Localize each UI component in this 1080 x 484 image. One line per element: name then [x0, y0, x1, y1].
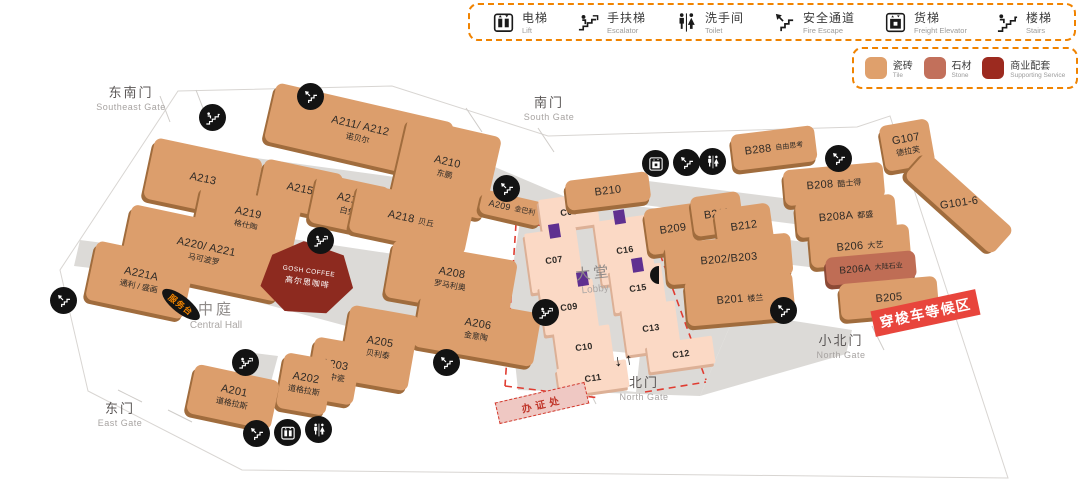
legend-item-fire-escape: 安全通道 Fire Escape [773, 9, 855, 35]
fire-escape-icon [297, 83, 324, 110]
booth-a202: A202 道格拉斯 [276, 352, 335, 416]
toilet-icon [305, 416, 332, 443]
toilet-icon [699, 148, 726, 175]
material-supporting-service: 商业配套 Supporting Service [982, 57, 1065, 79]
material-label-zh: 石材 [952, 57, 972, 72]
stairs-icon [199, 104, 226, 131]
gate-southeast: 东南门 Southeast Gate [72, 82, 190, 112]
freight-elevator-icon [642, 150, 669, 177]
stone-color-chip [924, 57, 946, 79]
material-stone: 石材 Stone [924, 57, 972, 79]
legend-label-zh: 洗手间 [705, 9, 744, 26]
fire-escape-icon [50, 287, 77, 314]
legend-item-lift: 电梯 Lift [492, 9, 548, 35]
fire-escape-icon [673, 149, 700, 176]
legend-label-en: Toilet [705, 26, 744, 35]
legend-label-en: Stairs [1026, 26, 1052, 35]
legend-label-zh: 电梯 [522, 9, 548, 26]
fire-escape-icon [825, 145, 852, 172]
fire-escape-icon [770, 297, 797, 324]
gate-north-small: 小北门 North Gate [796, 330, 886, 360]
gate-east: 东门 East Gate [80, 398, 160, 428]
legend-label-zh: 货梯 [914, 9, 967, 26]
legend-item-freight-elevator: 货梯 Freight Elevator [884, 9, 967, 35]
lift-icon [274, 419, 301, 446]
material-label-en: Tile [893, 72, 913, 79]
material-legend: 瓷砖 Tile 石材 Stone 商业配套 Supporting Service [852, 47, 1078, 89]
booth-tag [548, 223, 561, 239]
supporting-service-color-chip [982, 57, 1004, 79]
floor-map: 电梯 Lift 手扶梯 Escalator 洗手间 Toilet 安全通道 Fi… [0, 0, 1080, 484]
legend-label-zh: 楼梯 [1026, 9, 1052, 26]
material-label-en: Stone [952, 72, 972, 79]
fire-escape-icon [433, 349, 460, 376]
legend-item-escalator: 手扶梯 Escalator [577, 9, 646, 35]
legend-label-zh: 手扶梯 [607, 9, 646, 26]
toilet-icon [675, 11, 698, 34]
fire-escape-icon [243, 420, 270, 447]
fire-escape-icon [493, 175, 520, 202]
material-label-zh: 商业配套 [1010, 57, 1065, 72]
gate-north: 北门 North Gate [602, 372, 686, 402]
fire-escape-icon [773, 11, 796, 34]
lift-icon [492, 11, 515, 34]
escalator-icon [307, 227, 334, 254]
legend-item-stairs: 楼梯 Stairs [996, 9, 1052, 35]
material-label-zh: 瓷砖 [893, 57, 913, 72]
escalator-icon [532, 299, 559, 326]
escalator-icon [577, 11, 600, 34]
central-hall-label: 中庭 Central Hall [164, 298, 268, 331]
legend-label-en: Escalator [607, 26, 646, 35]
tile-color-chip [865, 57, 887, 79]
legend-bar: 电梯 Lift 手扶梯 Escalator 洗手间 Toilet 安全通道 Fi… [468, 3, 1076, 41]
material-label-en: Supporting Service [1010, 72, 1065, 79]
freight-elevator-icon [884, 11, 907, 34]
material-tile: 瓷砖 Tile [865, 57, 913, 79]
escalator-icon [232, 349, 259, 376]
legend-label-en: Lift [522, 26, 548, 35]
north-gate-arrows: ↓↑ [613, 351, 637, 372]
legend-label-zh: 安全通道 [803, 9, 855, 26]
legend-item-toilet: 洗手间 Toilet [675, 9, 744, 35]
stairs-icon [996, 11, 1019, 34]
booth-tag [631, 257, 644, 273]
legend-label-en: Freight Elevator [914, 26, 967, 35]
gate-south: 南门 South Gate [502, 92, 596, 122]
booth-tag [613, 209, 626, 225]
legend-label-en: Fire Escape [803, 26, 855, 35]
